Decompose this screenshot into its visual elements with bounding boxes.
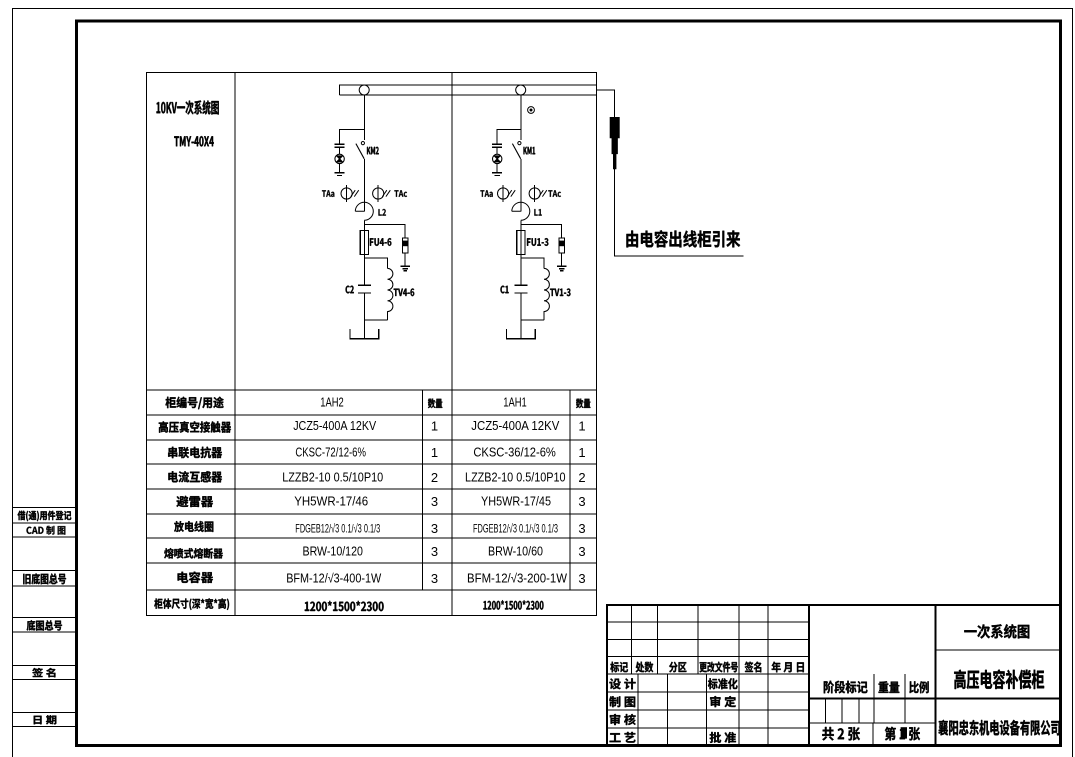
svg-text:1: 1 (578, 419, 585, 434)
svg-text:2: 2 (431, 470, 438, 485)
svg-text:3: 3 (431, 521, 438, 536)
svg-text:JCZ5-400A 12KV: JCZ5-400A 12KV (293, 419, 377, 433)
svg-text:BFM-12/√3-400-1W: BFM-12/√3-400-1W (286, 572, 381, 586)
svg-text:LZZB2-10 0.5/10P10: LZZB2-10 0.5/10P10 (465, 471, 566, 485)
svg-text:CKSC-72/12-6%: CKSC-72/12-6% (295, 446, 366, 460)
svg-text:3: 3 (578, 521, 585, 536)
svg-text:BRW-10/120: BRW-10/120 (303, 545, 363, 559)
svg-text:FDGEB12/√3 0.1/√3 0.1/3: FDGEB12/√3 0.1/√3 0.1/3 (295, 522, 380, 536)
svg-text:3: 3 (578, 544, 585, 559)
svg-text:3: 3 (431, 494, 438, 509)
svg-text:1: 1 (431, 445, 438, 460)
svg-text:JCZ5-400A 12KV: JCZ5-400A 12KV (471, 419, 560, 433)
svg-text:LZZB2-10 0.5/10P10: LZZB2-10 0.5/10P10 (282, 471, 383, 485)
svg-text:3: 3 (431, 544, 438, 559)
svg-text:FDGEB12/√3 0.1/√3 0.1/3: FDGEB12/√3 0.1/√3 0.1/3 (473, 522, 558, 536)
svg-text:3: 3 (431, 571, 438, 586)
svg-text:BRW-10/60: BRW-10/60 (488, 545, 543, 559)
svg-text:1AH2: 1AH2 (320, 396, 344, 410)
svg-text:YH5WR-17/45: YH5WR-17/45 (481, 495, 551, 509)
svg-text:BFM-12/√3-200-1W: BFM-12/√3-200-1W (467, 572, 567, 586)
svg-text:1: 1 (578, 445, 585, 460)
svg-text:3: 3 (578, 494, 585, 509)
svg-text:YH5WR-17/46: YH5WR-17/46 (294, 495, 368, 509)
svg-text:2: 2 (578, 470, 585, 485)
svg-text:1AH1: 1AH1 (503, 396, 527, 410)
svg-text:CKSC-36/12-6%: CKSC-36/12-6% (473, 446, 556, 460)
svg-text:3: 3 (578, 571, 585, 586)
svg-text:1: 1 (431, 419, 438, 434)
